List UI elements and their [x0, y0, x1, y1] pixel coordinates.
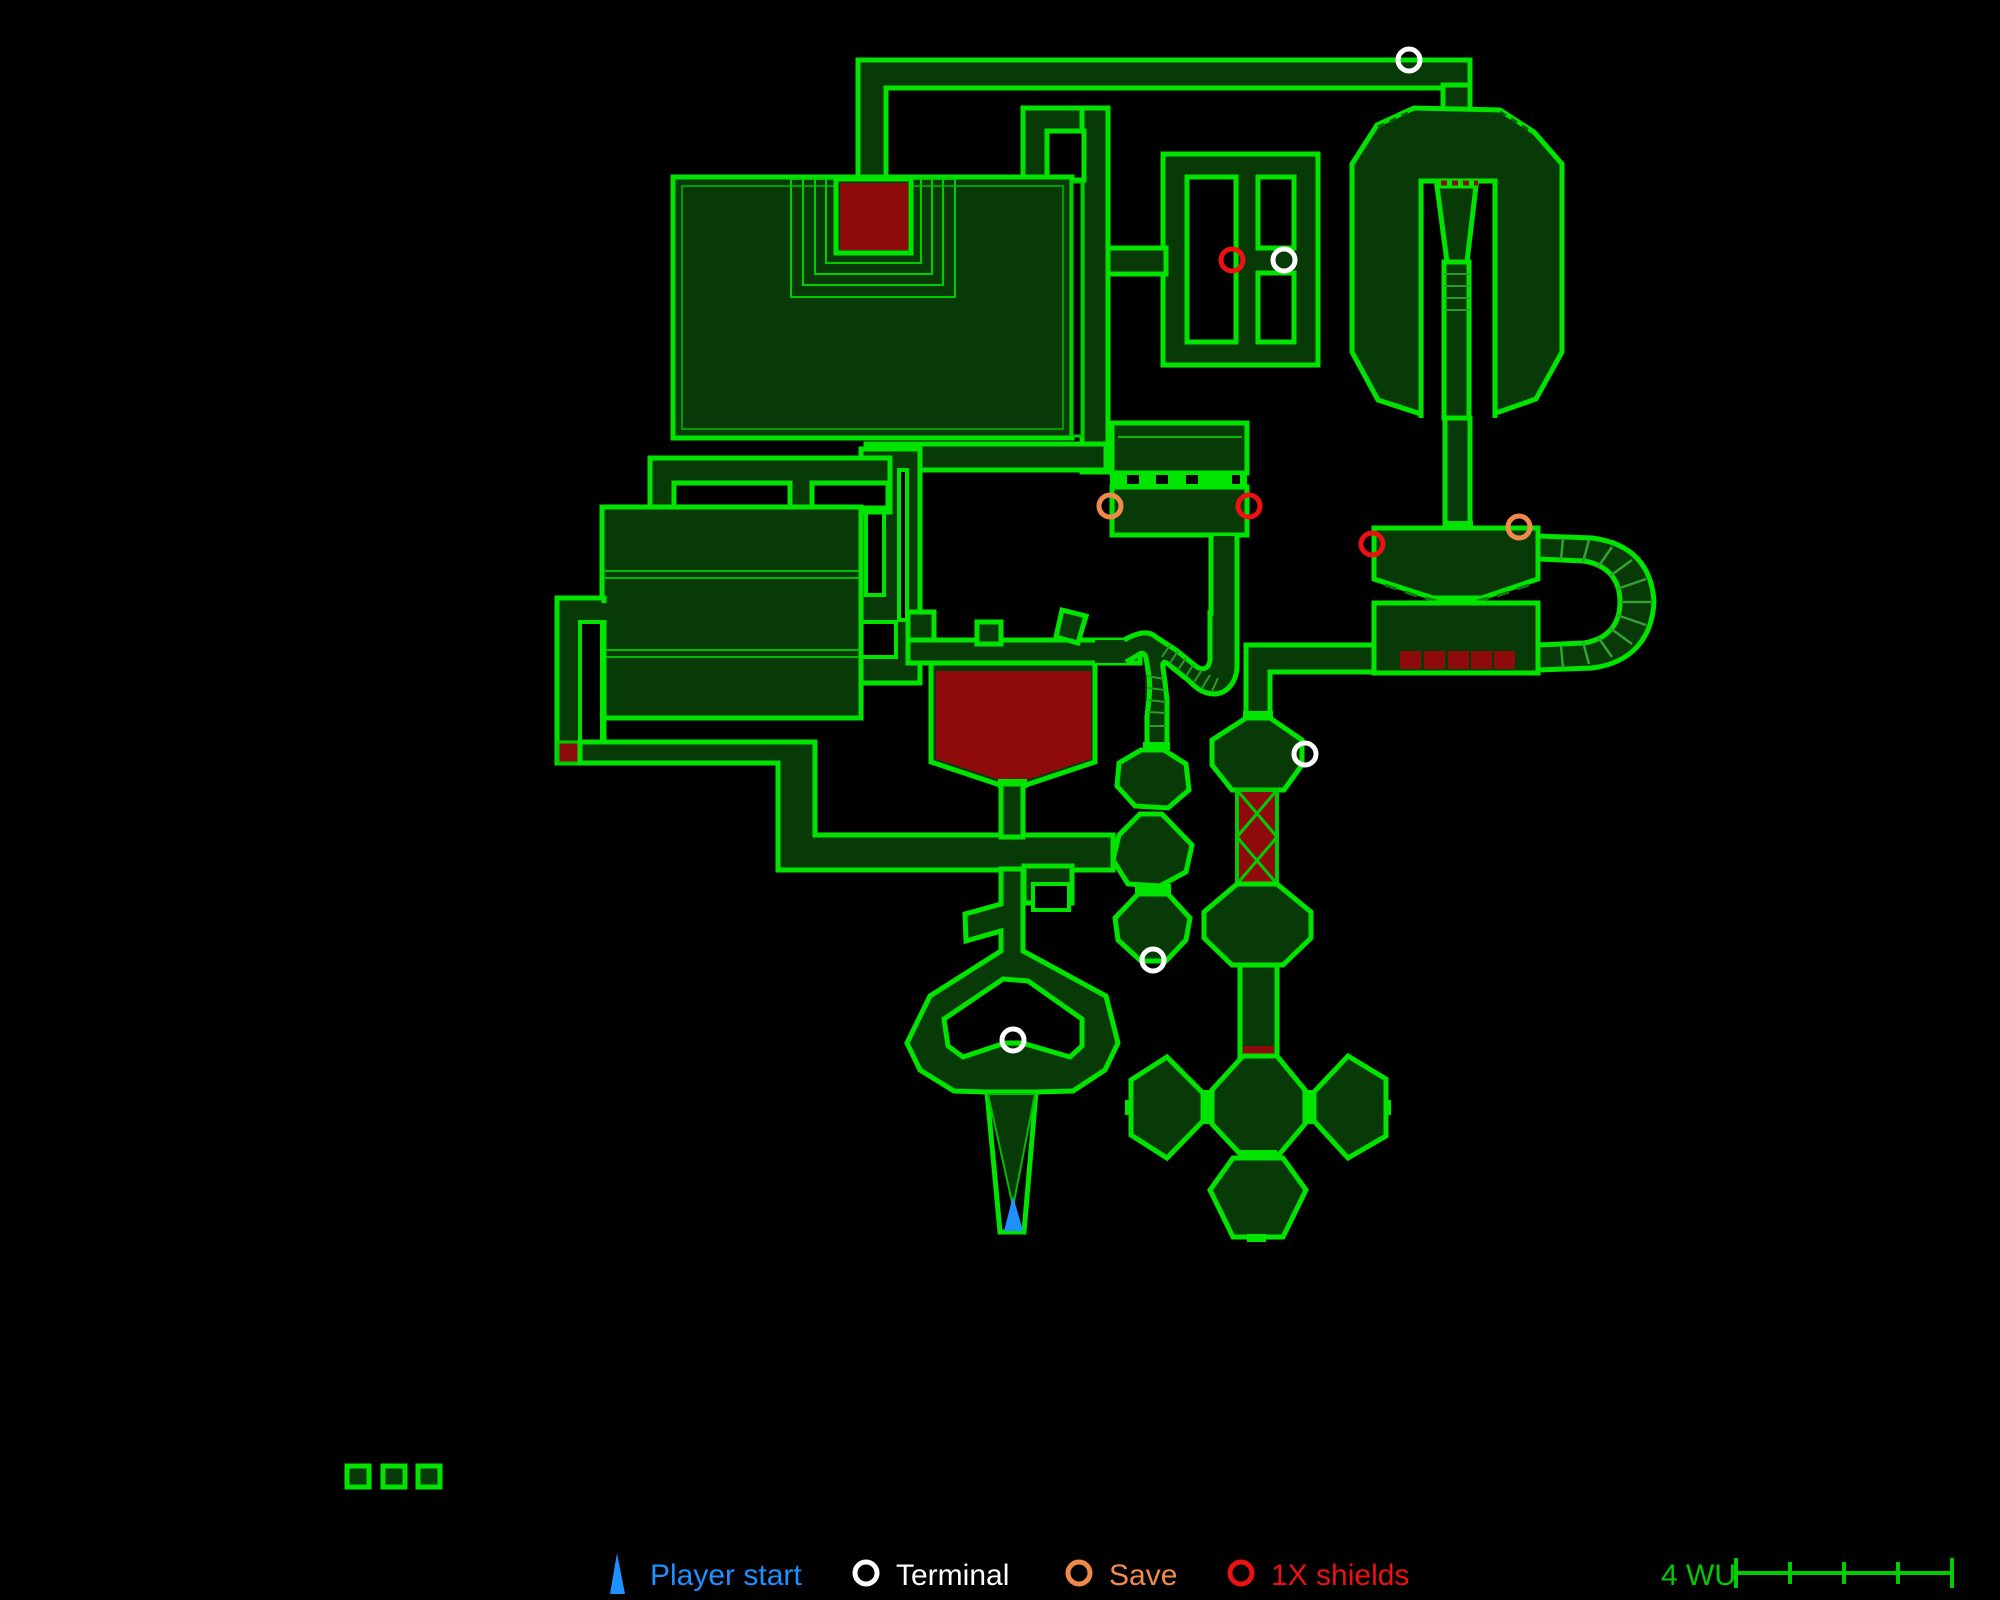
svg-text:4 WU: 4 WU — [1661, 1559, 1736, 1592]
svg-text:1X shields: 1X shields — [1271, 1559, 1409, 1592]
svg-text:Terminal: Terminal — [896, 1559, 1009, 1592]
svg-text:Player start: Player start — [650, 1559, 802, 1592]
svg-text:Save: Save — [1109, 1559, 1177, 1592]
